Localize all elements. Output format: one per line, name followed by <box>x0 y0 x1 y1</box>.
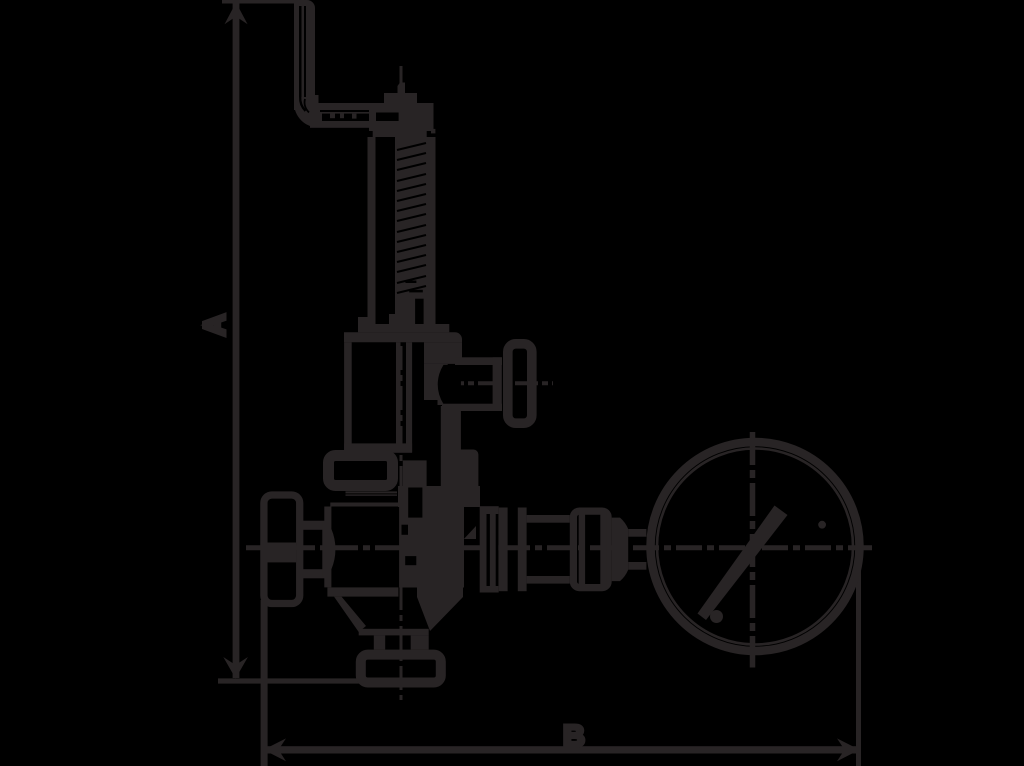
svg-text:B: B <box>563 720 585 753</box>
svg-text:A: A <box>199 314 232 336</box>
